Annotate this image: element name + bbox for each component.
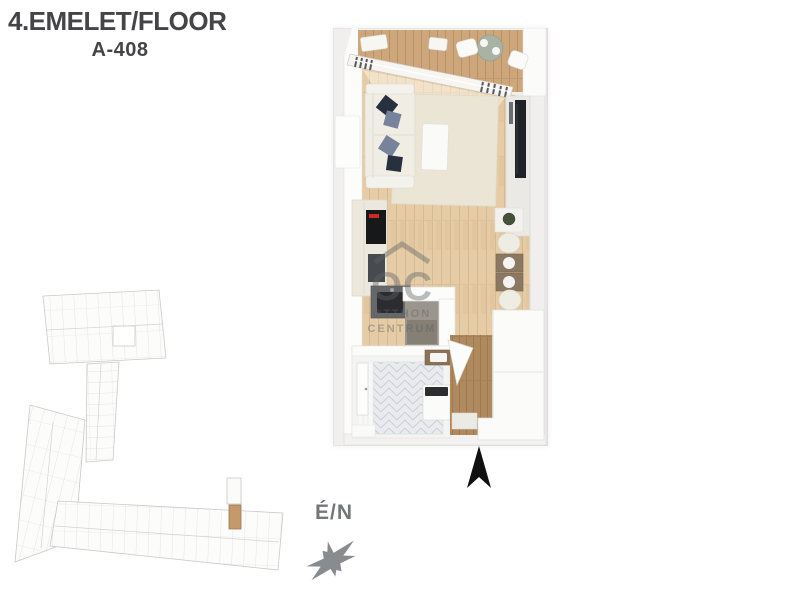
dining-chair [499, 290, 521, 310]
sink [377, 292, 403, 313]
page-header: 4.EMELET/FLOOR A-408 [8, 6, 232, 62]
living-room [365, 84, 498, 206]
north-arrow-icon [458, 442, 500, 492]
built-in-appliance [368, 254, 385, 282]
doormat [452, 413, 477, 429]
unit-number: A-408 [8, 39, 232, 62]
deck-cushion [428, 37, 447, 51]
apartment-plan-wrap [333, 28, 548, 446]
bathroom [352, 346, 452, 438]
plant [503, 213, 515, 225]
highlighted-unit [229, 505, 241, 529]
balcony-table [477, 35, 503, 61]
washbasin [430, 353, 447, 362]
floorplan-page: 4.EMELET/FLOOR A-408 [0, 0, 800, 600]
breakfast-bar [403, 287, 455, 349]
compass-label: É/N [300, 501, 368, 525]
apartment-floor-plan [333, 28, 548, 446]
compass-rose-icon [298, 530, 366, 592]
window-niche [335, 116, 360, 168]
sofa [365, 84, 415, 188]
building-wings [15, 290, 283, 570]
sofa-pillow [386, 155, 403, 172]
floor-title: 4.EMELET/FLOOR [8, 6, 232, 37]
dining-chair [498, 233, 520, 253]
coffee-table [421, 124, 449, 171]
site-plan-minimap [13, 286, 298, 588]
